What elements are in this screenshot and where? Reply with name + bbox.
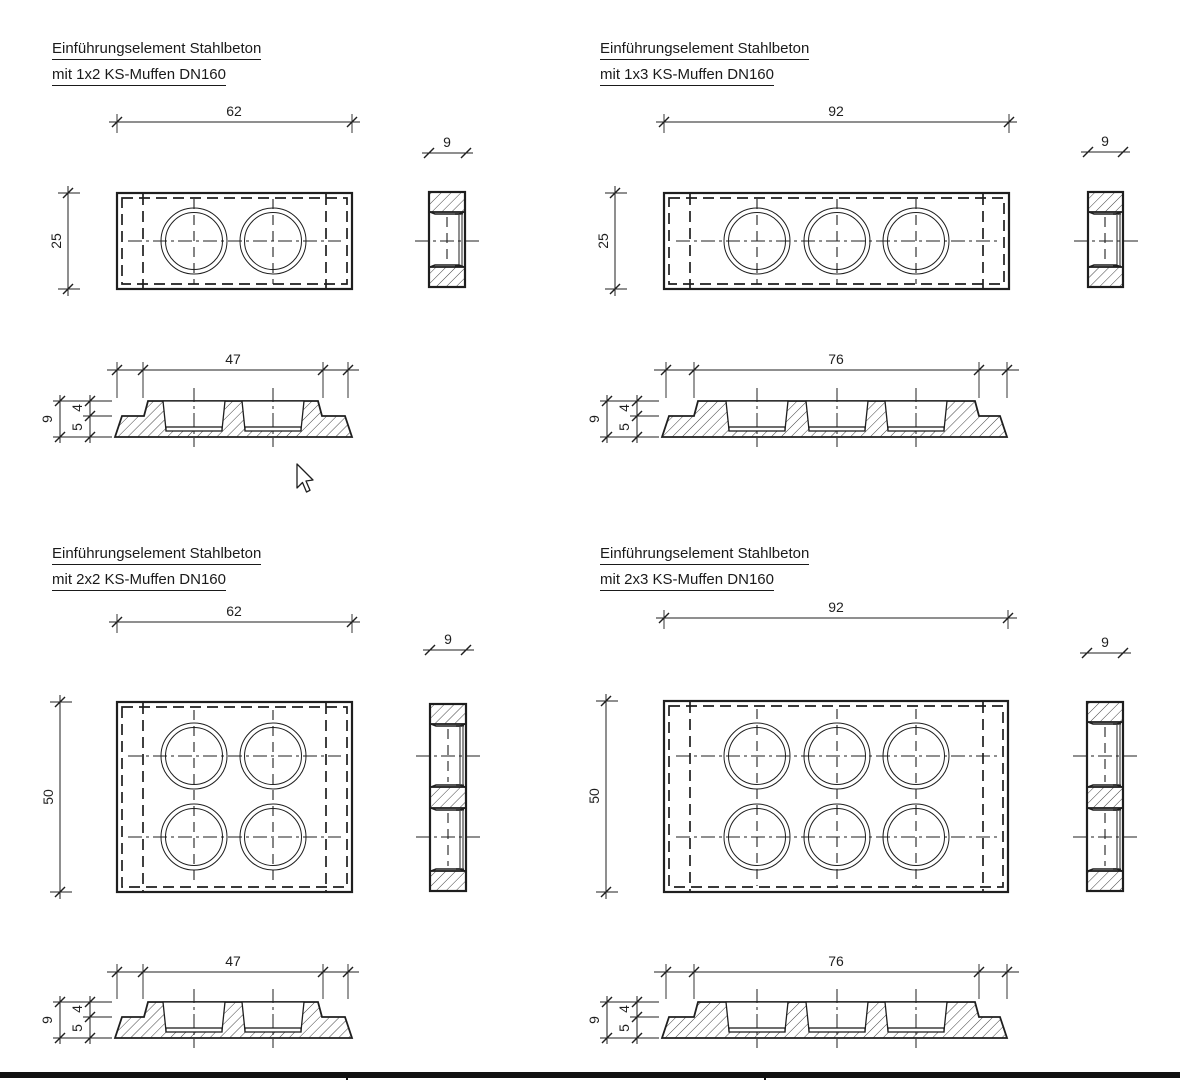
plan-view-1x3: 92 25 xyxy=(595,103,1017,296)
plan-view-2x3: 92 50 xyxy=(586,599,1017,899)
dim-section-width-1x3: 76 xyxy=(828,351,844,367)
dim-section-height-2x3: 9 xyxy=(586,1016,602,1024)
dim-side-width-2x3: 9 xyxy=(1101,634,1109,650)
dim-plan-height-2x3: 50 xyxy=(586,788,602,804)
section-view-1x2: 47 9 4 5 xyxy=(39,351,359,447)
plan-view-2x2: 62 50 xyxy=(40,603,360,899)
side-view-1x2: 9 xyxy=(415,134,480,287)
dim-plan-height-2x2: 50 xyxy=(40,789,56,805)
dim-section-top-2x2: 4 xyxy=(69,1005,85,1013)
dim-plan-width-1x3: 92 xyxy=(828,103,844,119)
drawing-frame-border xyxy=(0,1072,1180,1080)
dim-section-width-1x2: 47 xyxy=(225,351,241,367)
side-view-2x3: 9 xyxy=(1073,634,1138,891)
plan-view-1x2: 62 25 xyxy=(48,103,360,296)
section-view-2x3: 76 9 4 5 xyxy=(586,953,1019,1048)
dim-side-width-1x3: 9 xyxy=(1101,133,1109,149)
dim-section-width-2x2: 47 xyxy=(225,953,241,969)
dim-plan-height-1x2: 25 xyxy=(48,233,64,249)
dim-section-height-1x2: 9 xyxy=(39,415,55,423)
side-view-1x3: 9 xyxy=(1074,133,1138,287)
dim-side-width-1x2: 9 xyxy=(443,134,451,150)
dim-section-bottom-2x2: 5 xyxy=(69,1024,85,1032)
dim-section-bottom-2x3: 5 xyxy=(616,1024,632,1032)
dim-plan-width-1x2: 62 xyxy=(226,103,242,119)
dim-plan-width-2x2: 62 xyxy=(226,603,242,619)
dim-section-width-2x3: 76 xyxy=(828,953,844,969)
dim-section-height-1x3: 9 xyxy=(586,415,602,423)
drawing-sheet: Einführungselement Stahlbeton mit 1x2 KS… xyxy=(0,0,1180,1080)
dim-section-height-2x2: 9 xyxy=(39,1016,55,1024)
dim-plan-width-2x3: 92 xyxy=(828,599,844,615)
technical-drawing-canvas: 62 25 9 xyxy=(0,0,1180,1080)
mouse-cursor-icon xyxy=(297,464,313,492)
section-view-1x3: 76 9 4 5 xyxy=(586,351,1019,447)
side-view-2x2: 9 xyxy=(416,631,481,891)
section-view-2x2: 47 9 4 5 xyxy=(39,953,359,1048)
dim-plan-height-1x3: 25 xyxy=(595,233,611,249)
dim-section-top-2x3: 4 xyxy=(616,1005,632,1013)
dim-section-bottom-1x3: 5 xyxy=(616,423,632,431)
dim-side-width-2x2: 9 xyxy=(444,631,452,647)
dim-section-bottom-1x2: 5 xyxy=(69,423,85,431)
dim-section-top-1x2: 4 xyxy=(69,404,85,412)
dim-section-top-1x3: 4 xyxy=(616,404,632,412)
